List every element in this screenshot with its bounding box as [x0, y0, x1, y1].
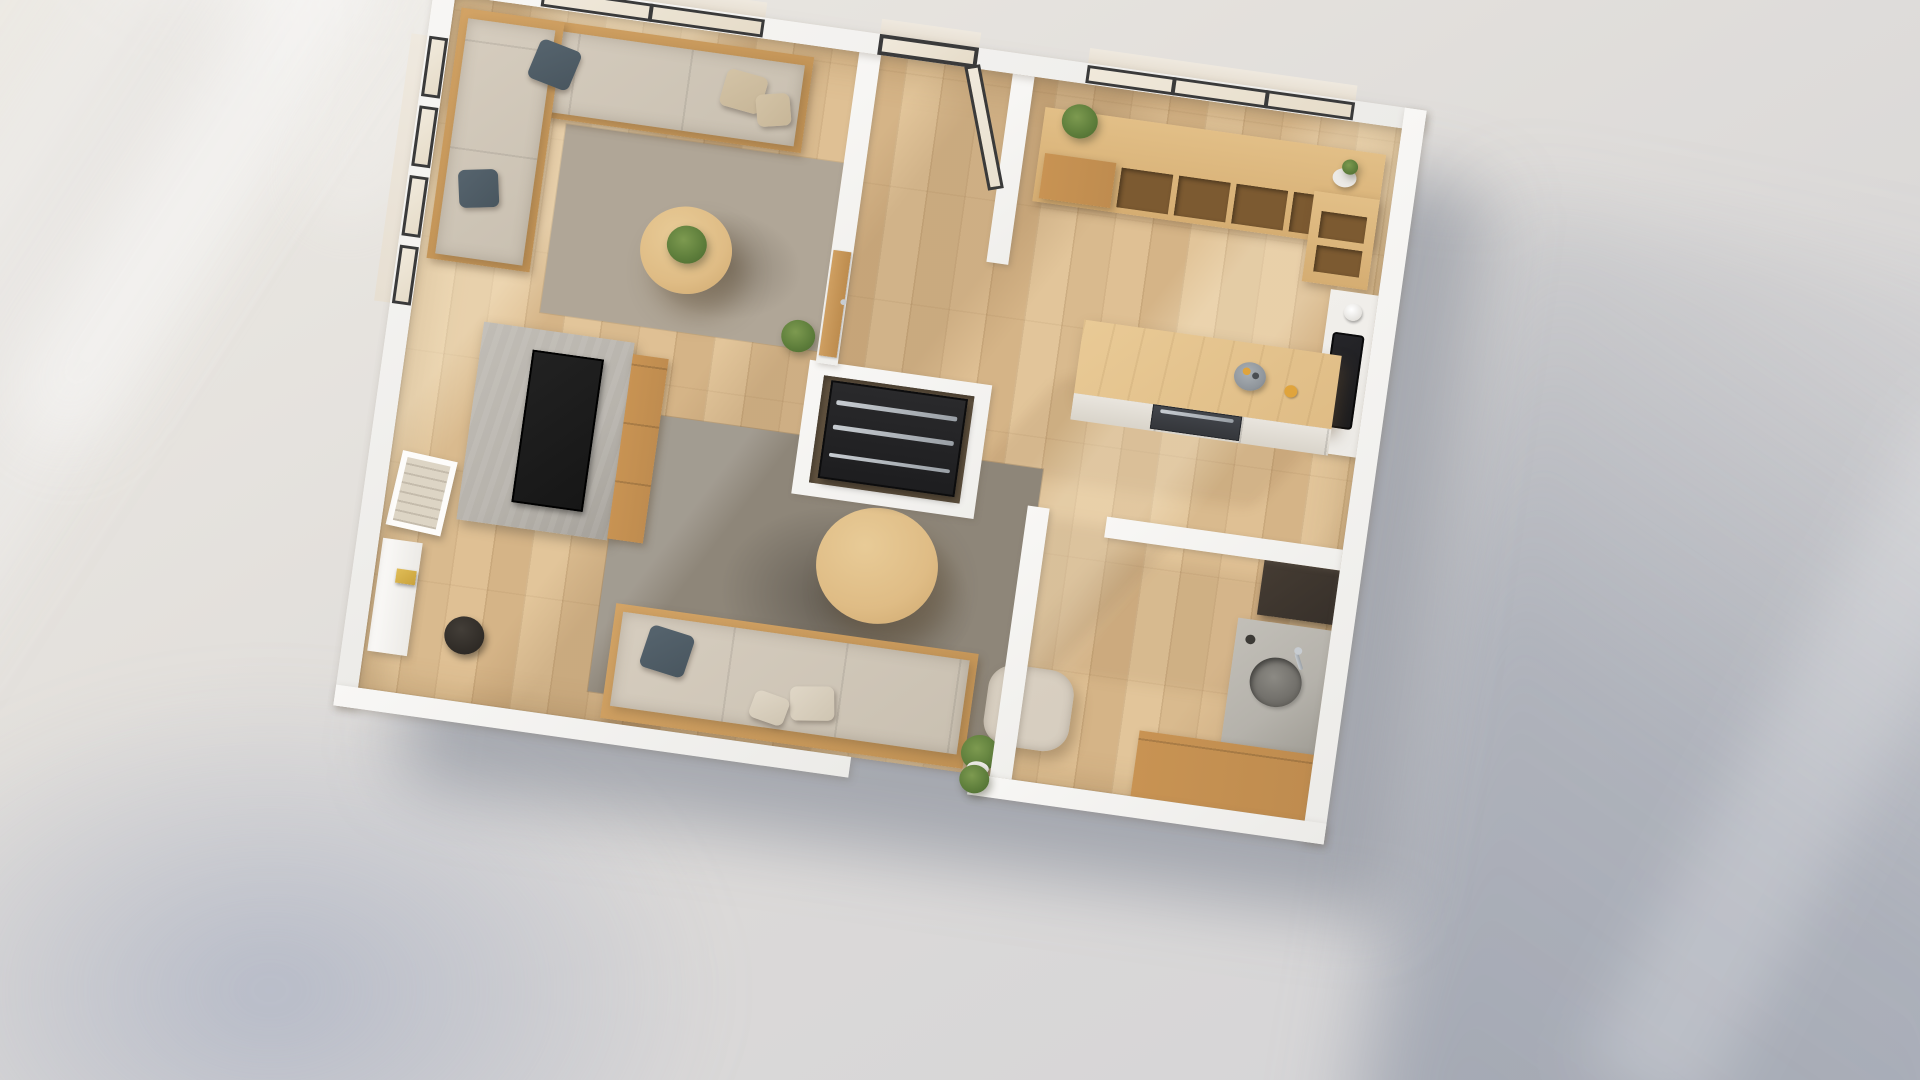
apartment-model	[333, 0, 1426, 844]
cream-pillow	[790, 686, 834, 721]
tan-pillow	[755, 93, 791, 127]
sideboard-cubby	[1174, 176, 1231, 223]
sideboard-cubby	[1231, 184, 1288, 231]
scene-backdrop	[0, 0, 1920, 1080]
black-appliance	[818, 380, 968, 497]
dark-pillow	[458, 169, 500, 208]
sideboard-cubby	[1116, 168, 1173, 215]
bathroom-dark-unit	[1257, 560, 1340, 625]
sideboard-closed-cabinet	[1039, 153, 1117, 208]
gold-decor-box	[395, 568, 417, 585]
